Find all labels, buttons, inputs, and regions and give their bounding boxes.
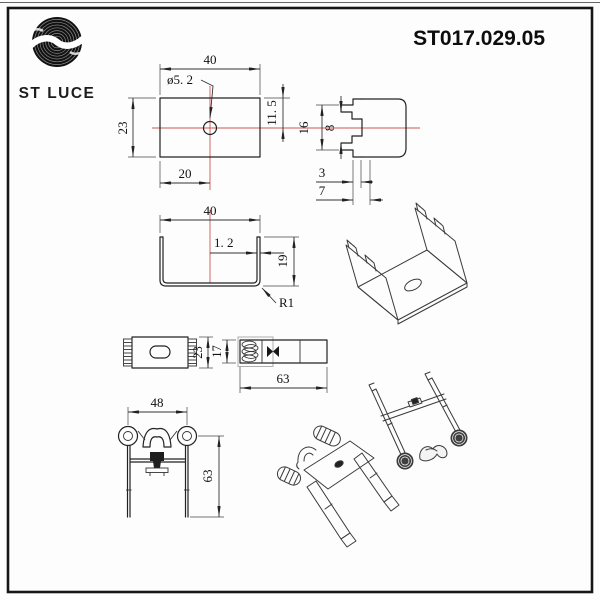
dim-clip-front-height: 63 bbox=[200, 470, 215, 483]
clip-slot bbox=[150, 346, 170, 358]
view-clip-side: 17 63 bbox=[210, 337, 327, 393]
dim-channel-width: 40 bbox=[204, 203, 217, 218]
drawing-border bbox=[8, 8, 592, 592]
dim-plate-hole-x: 20 bbox=[179, 166, 192, 181]
dim-profile-outer: 16 bbox=[296, 121, 311, 135]
view-clip-front: 48 63 bbox=[119, 395, 225, 517]
pedestal-block bbox=[150, 452, 164, 461]
dim-channel-radius: R1 bbox=[279, 295, 294, 310]
dim-clip-top-height: 23 bbox=[191, 346, 205, 359]
dim-profile-lip: 3 bbox=[319, 165, 326, 180]
drawing-sheet: ST LUCE ST017.029.05 40 ø5. 2 23 11. 5 2… bbox=[0, 0, 600, 600]
dim-profile-inner: 8 bbox=[322, 125, 337, 132]
dim-clip-side-height: 17 bbox=[210, 345, 224, 358]
dim-plate-height: 23 bbox=[115, 122, 130, 135]
dim-channel-thickness: 1. 2 bbox=[214, 235, 234, 250]
view-profile-side: 16 8 3 7 bbox=[296, 96, 406, 205]
view-clip-isometric-back bbox=[369, 372, 467, 469]
dim-plate-hole: ø5. 2 bbox=[167, 72, 193, 87]
view-bracket-isometric bbox=[346, 203, 467, 324]
brand-text: ST LUCE bbox=[19, 85, 96, 102]
dim-clip-side-length: 63 bbox=[277, 371, 290, 386]
view-clip-top: 23 bbox=[124, 337, 214, 368]
dim-plate-width: 40 bbox=[204, 52, 217, 67]
spring-coil bbox=[242, 341, 258, 362]
saddle-wing bbox=[143, 429, 171, 447]
part-number: ST017.029.05 bbox=[413, 27, 545, 50]
dim-plate-hole-y: 11. 5 bbox=[264, 100, 279, 126]
view-plate-top: 40 ø5. 2 23 11. 5 20 bbox=[115, 52, 420, 190]
latch-mark bbox=[267, 346, 273, 357]
dim-profile-depth: 7 bbox=[319, 183, 326, 198]
dim-clip-front-width: 48 bbox=[151, 395, 164, 410]
view-clip-isometric-front bbox=[275, 424, 399, 547]
brand-logo bbox=[30, 17, 84, 67]
view-channel-front: 40 1. 2 19 R1 bbox=[160, 203, 299, 310]
dim-channel-height: 19 bbox=[275, 255, 290, 268]
